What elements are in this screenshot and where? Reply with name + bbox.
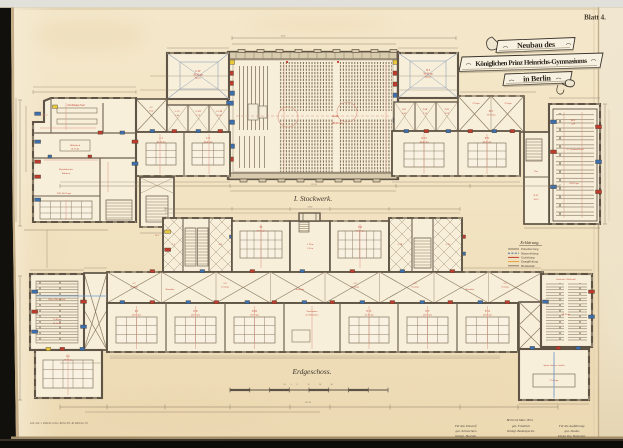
svg-text:D.II: D.II (402, 108, 406, 111)
svg-text:Gr. Gymnastiksaal: Gr. Gymnastiksaal (566, 149, 583, 151)
svg-text:Physikalisches: Physikalisches (59, 168, 73, 171)
svg-text:1.30 m: 1.30 m (307, 248, 313, 250)
svg-text:46.30: 46.30 (281, 36, 286, 38)
svg-text:Königl. Bauinspector.: Königl. Bauinspector. (506, 429, 535, 433)
svg-text:A.I: A.I (171, 243, 174, 246)
svg-text:Klein. Bibl. u. Kab.: Klein. Bibl. u. Kab. (48, 299, 66, 301)
svg-text:1. Flur: 1. Flur (307, 243, 314, 246)
svg-text:A.III: A.III (398, 243, 403, 246)
svg-text:gez. Friedrich: gez. Friedrich (512, 424, 530, 428)
svg-text:Zeichnungs Saal: Zeichnungs Saal (67, 104, 84, 107)
svg-text:23.54 qm: 23.54 qm (130, 285, 138, 288)
svg-text:59.60: 59.60 (308, 207, 313, 209)
svg-text:A.V: A.V (503, 282, 507, 285)
svg-text:Erklärung.: Erklärung. (519, 240, 539, 245)
svg-text:58.10 qm: 58.10 qm (71, 147, 80, 150)
svg-text:168.20 qm: 168.20 qm (569, 182, 579, 185)
svg-text:A.IV: A.IV (446, 243, 451, 246)
svg-text:46.40 qm: 46.40 qm (157, 140, 166, 143)
svg-text:23.54 qm: 23.54 qm (351, 285, 359, 288)
svg-text:23.54 qm: 23.54 qm (501, 285, 509, 288)
svg-text:79.70 qm: 79.70 qm (487, 113, 496, 116)
svg-text:Berlin im März 1874.: Berlin im März 1874. (507, 418, 534, 422)
svg-text:Bibliothek: Bibliothek (70, 144, 81, 147)
svg-text:121.30: 121.30 (311, 184, 317, 186)
svg-text:A.V: A.V (132, 282, 136, 285)
svg-text:23.54 qm: 23.54 qm (504, 102, 512, 105)
svg-text:Königl. Baurath.: Königl. Baurath. (454, 434, 477, 438)
svg-text:B.IV: B.IV (534, 194, 539, 197)
svg-text:Aula: Aula (332, 114, 339, 118)
svg-text:D.IV: D.IV (445, 108, 450, 111)
svg-text:75.40 qm: 75.40 qm (53, 318, 62, 321)
svg-text:48.10 qm: 48.10 qm (562, 313, 571, 316)
svg-text:121.30: 121.30 (305, 402, 312, 404)
svg-text:Lith. Inst. v. Wilhelm Greve,: Lith. Inst. v. Wilhelm Greve, Berlin SW.… (29, 422, 88, 425)
svg-text:Für die Ausführung:: Für die Ausführung: (558, 424, 585, 428)
svg-text:Korridor: Korridor (296, 288, 305, 291)
svg-text:10 5 0: 10 5 0 10 20 30 (284, 384, 333, 386)
svg-text:2.4: 2.4 (571, 121, 575, 125)
svg-text:Korridor: Korridor (166, 288, 175, 291)
svg-text:Korridor: Korridor (466, 288, 475, 291)
svg-text:A.V: A.V (353, 282, 357, 285)
svg-text:A.II: A.II (218, 243, 222, 246)
svg-text:Klasse: Klasse (195, 77, 201, 80)
svg-text:A.V: A.V (149, 106, 153, 109)
svg-text:23.54 qm: 23.54 qm (221, 285, 229, 288)
svg-text:A.V: A.V (413, 282, 417, 285)
svg-text:Blatt 4.: Blatt 4. (584, 14, 606, 22)
svg-text:Heizkanäle: Heizkanäle (520, 264, 536, 268)
svg-text:286.40 qm: 286.40 qm (331, 122, 342, 125)
svg-text:gez. Schwechten: gez. Schwechten (456, 429, 477, 433)
svg-text:I. Stockwerk.: I. Stockwerk. (293, 194, 333, 203)
svg-text:46.40 qm: 46.40 qm (204, 140, 213, 143)
svg-text:Neubau des: Neubau des (517, 40, 555, 50)
svg-text:Garderobe - Kleiderabl.: Garderobe - Kleiderabl. (556, 279, 576, 281)
svg-text:A.VIII: A.VIII (216, 110, 223, 113)
svg-text:Kabinett: Kabinett (62, 172, 71, 175)
svg-text:Erdgeschoss.: Erdgeschoss. (292, 367, 332, 376)
svg-text:23.54 qm: 23.54 qm (472, 102, 480, 105)
svg-text:B.II 48.10 qm: B.II 48.10 qm (57, 192, 71, 195)
svg-text:D.III: D.III (423, 108, 428, 111)
svg-text:58.10 qm: 58.10 qm (53, 322, 62, 325)
svg-text:A.VI: A.VI (175, 110, 180, 113)
svg-text:gez. Paulus: gez. Paulus (565, 429, 580, 433)
svg-text:A.VII: A.VII (195, 110, 201, 113)
svg-text:B.I: B.I (156, 234, 159, 237)
svg-text:Königl. Reg. Baumeister.: Königl. Reg. Baumeister. (557, 435, 586, 438)
svg-text:23.54 qm: 23.54 qm (411, 285, 419, 288)
svg-text:in Berlin: in Berlin (523, 73, 552, 83)
svg-text:A.V: A.V (223, 282, 227, 285)
svg-text:23.54: 23.54 (149, 110, 153, 112)
svg-text:Für den Entwurf:: Für den Entwurf: (454, 424, 477, 428)
svg-text:Flur: Flur (534, 171, 538, 173)
